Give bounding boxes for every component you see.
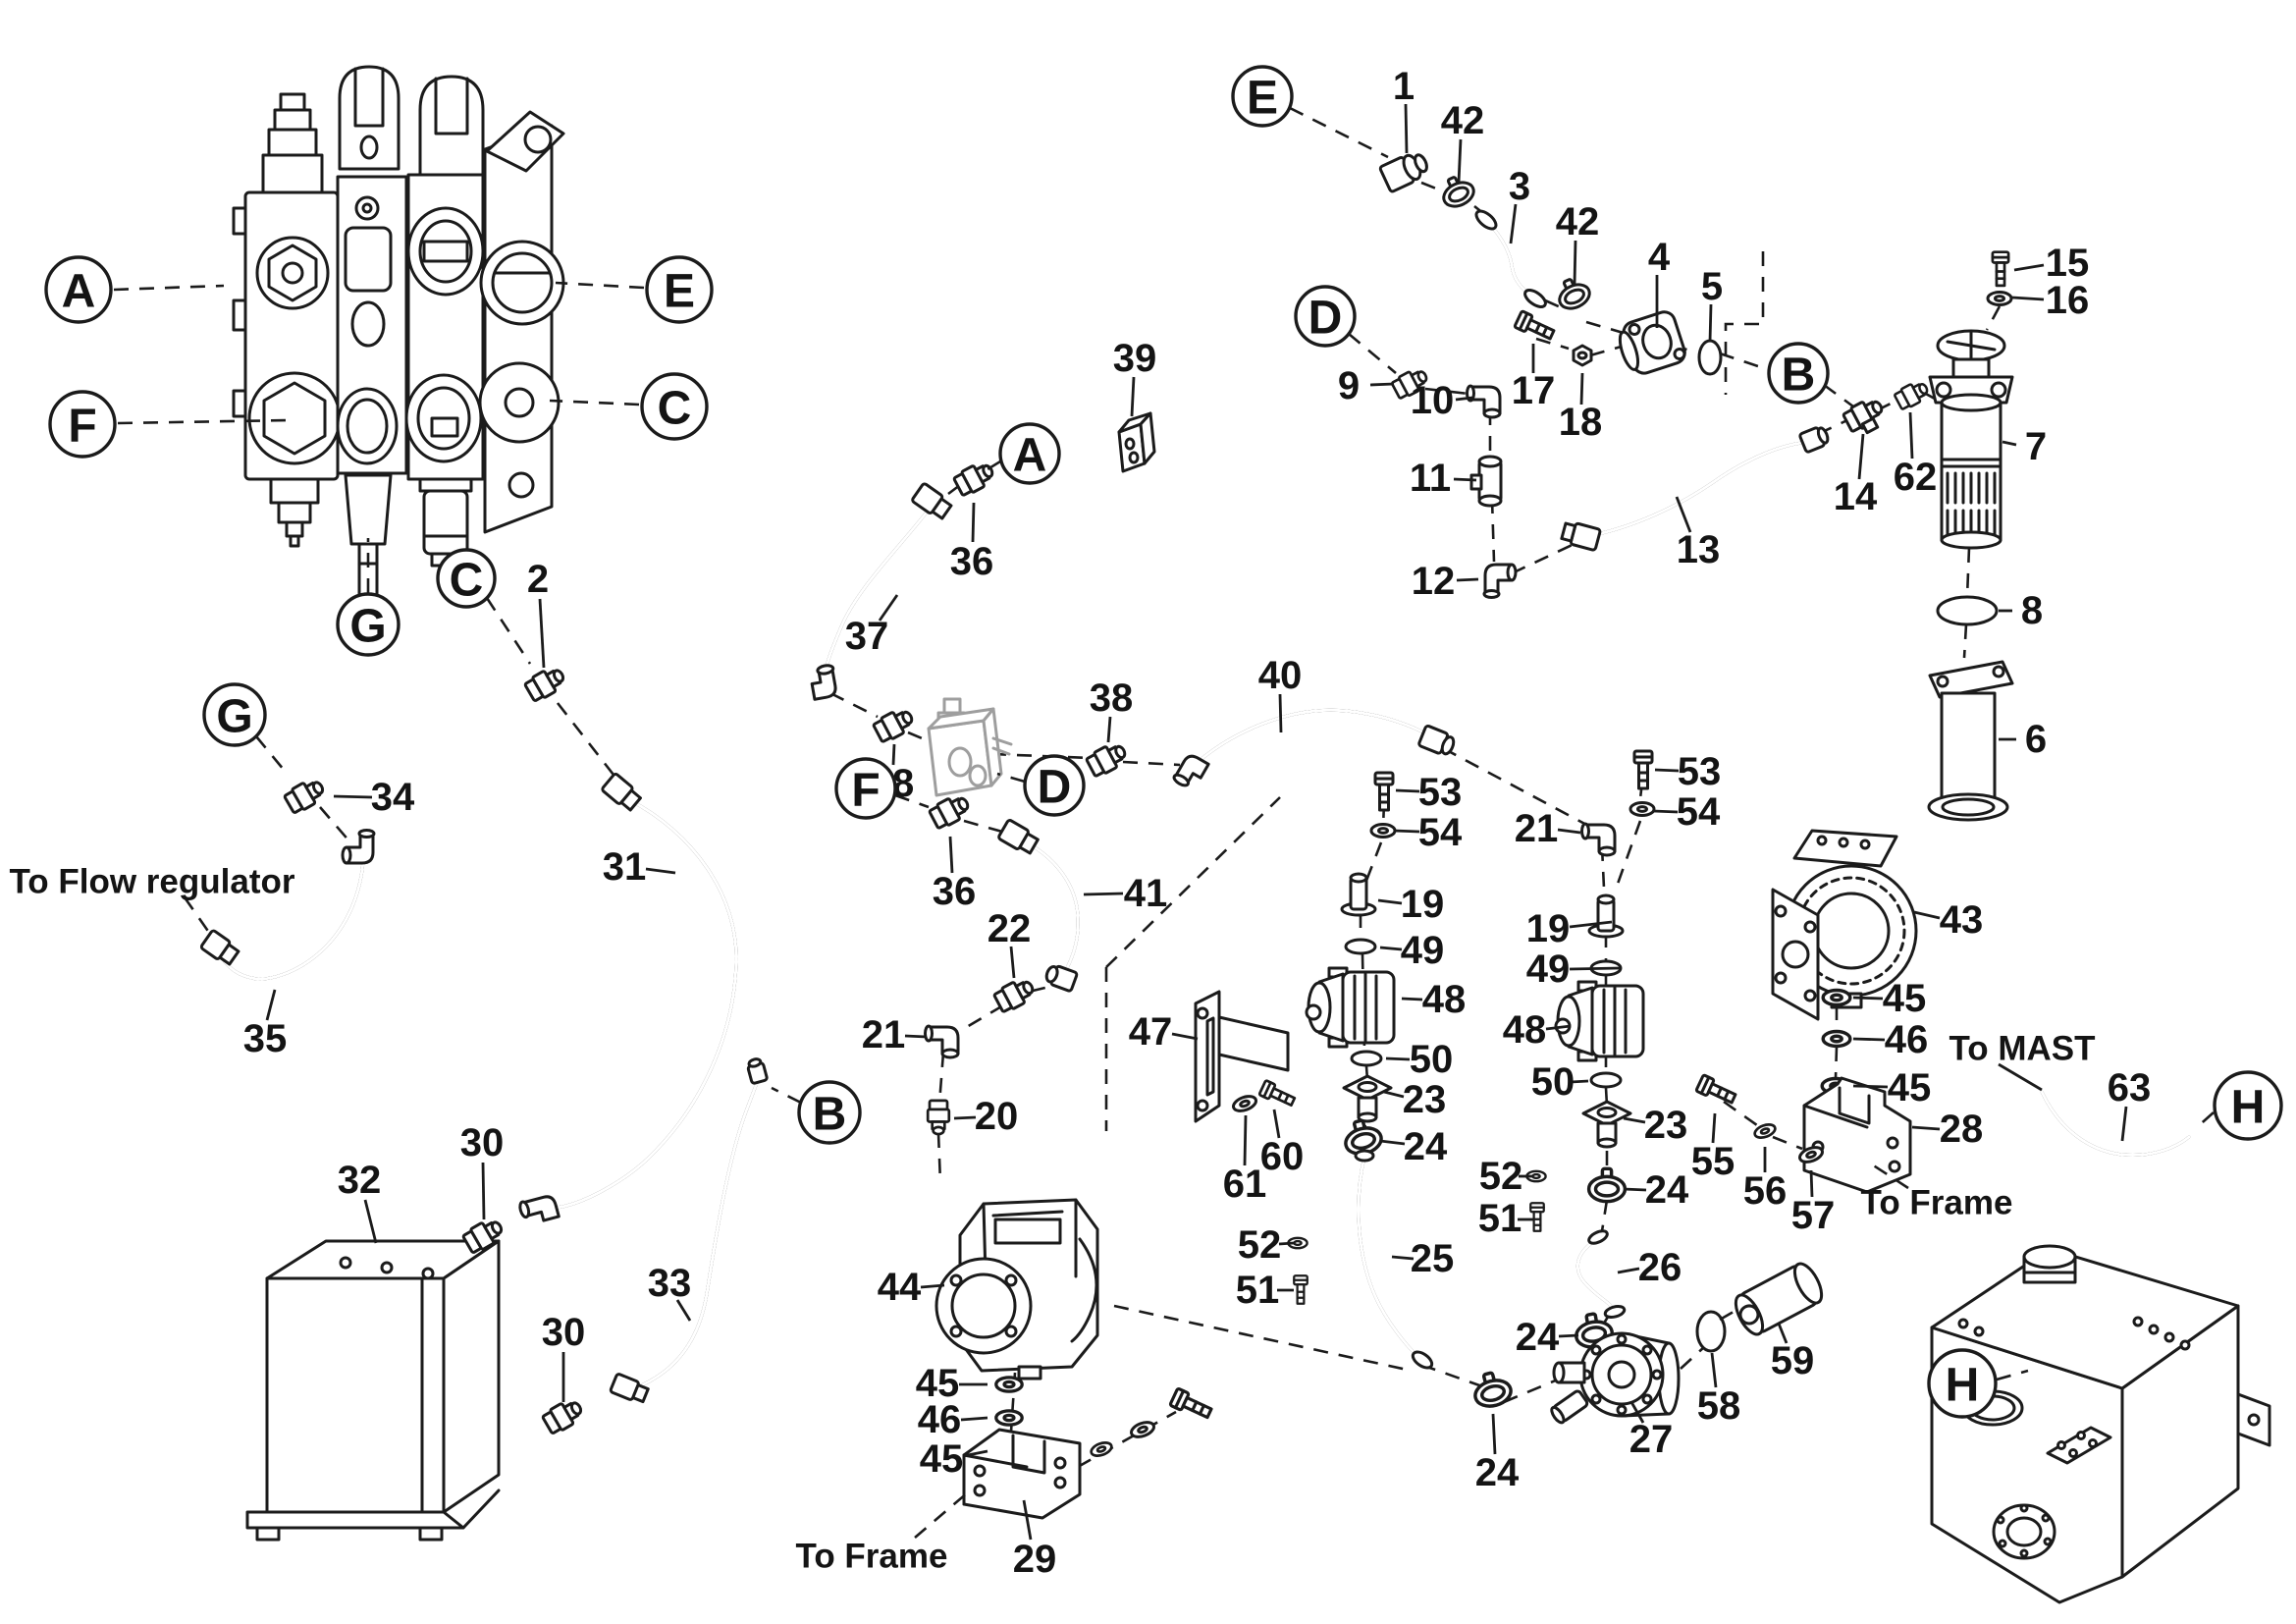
callout-letter-H-15: H — [1946, 1360, 1980, 1412]
clamp-42a — [1437, 172, 1477, 211]
part-leader-3 — [1511, 204, 1516, 244]
part-label-57-77: 57 — [1791, 1194, 1836, 1237]
o-ring-50b — [1591, 1073, 1621, 1087]
fitting-14 — [1842, 395, 1890, 438]
part-label-63-83: 63 — [2108, 1066, 2152, 1110]
part-label-8-7: 8 — [2021, 589, 2043, 632]
part-label-45-59: 45 — [1888, 1066, 1932, 1110]
callout-leader-C — [487, 598, 530, 664]
nut-18 — [1574, 346, 1591, 365]
note-leader-0 — [185, 897, 212, 937]
part-leader-47 — [1172, 1034, 1198, 1039]
elbow-21a — [926, 1026, 959, 1057]
axis-line-58 — [1536, 339, 1569, 349]
part-label-53-72: 53 — [1678, 750, 1722, 793]
washer-54a — [1371, 825, 1395, 838]
part-label-33-39: 33 — [648, 1262, 692, 1305]
part-label-60-80: 60 — [1260, 1135, 1305, 1178]
bracket-29-art — [964, 1430, 1080, 1518]
axis-line-32 — [1773, 1137, 1802, 1149]
part-leader-36 — [950, 837, 952, 873]
part-leader-40 — [1280, 694, 1281, 732]
axis-line-47 — [1726, 251, 1763, 395]
washer-45a — [1823, 991, 1850, 1005]
part-leader-28 — [1912, 1127, 1940, 1129]
clamp-24b — [1589, 1168, 1626, 1201]
stub-19a — [1342, 874, 1375, 915]
part-label-49-63: 49 — [1401, 929, 1445, 972]
part-label-23-24: 23 — [1403, 1078, 1447, 1121]
bolt-53a — [1375, 773, 1393, 810]
bolt-51b — [1294, 1275, 1308, 1304]
part-leader-32 — [365, 1200, 376, 1243]
part-label-40-48: 40 — [1258, 654, 1303, 697]
part-label-58-78: 58 — [1697, 1384, 1741, 1428]
part-leader-55 — [1713, 1113, 1715, 1143]
fitting-23b — [1583, 1102, 1630, 1147]
bolt-53b — [1634, 751, 1652, 788]
part-leader-21 — [1558, 830, 1580, 833]
part-label-13-12: 13 — [1677, 528, 1721, 571]
callout-letter-F-9: F — [851, 765, 880, 817]
part-leader-50 — [1386, 1058, 1410, 1059]
part-leader-63 — [2122, 1107, 2126, 1141]
part-label-12-11: 12 — [1412, 560, 1456, 603]
part-leader-15 — [2014, 265, 2044, 270]
washer-54b — [1630, 803, 1654, 816]
fitting-30b — [542, 1396, 586, 1435]
washer-29b — [1090, 1440, 1113, 1458]
axis-line-50 — [1492, 499, 1494, 562]
part-label-39-47: 39 — [1113, 337, 1157, 380]
axis-line-4 — [908, 732, 927, 740]
clamp-42b — [1553, 274, 1593, 313]
part-leader-11 — [1454, 479, 1476, 480]
fitting-38b — [1086, 739, 1130, 778]
part-label-23-25: 23 — [1644, 1104, 1688, 1147]
axis-lines — [320, 183, 2000, 1467]
part-label-21-21: 21 — [862, 1013, 906, 1056]
part-label-24-28: 24 — [1516, 1316, 1560, 1359]
callout-leader-E — [1290, 108, 1388, 157]
part-label-24-29: 24 — [1475, 1451, 1520, 1494]
axis-line-51 — [1512, 542, 1578, 573]
part-leader-48 — [1402, 999, 1422, 1000]
part-label-30-36: 30 — [542, 1311, 586, 1354]
part-leader-41 — [1084, 893, 1123, 894]
bolt-29-mount — [1170, 1388, 1213, 1422]
stub-19b — [1589, 895, 1623, 937]
part-label-29-34: 29 — [1013, 1538, 1057, 1581]
elbow-12 — [1484, 565, 1516, 598]
pump-48b — [1556, 982, 1643, 1060]
part-label-11-10: 11 — [1410, 457, 1451, 500]
part-leader-42 — [1575, 241, 1575, 285]
part-label-10-9: 10 — [1411, 379, 1455, 422]
part-label-43-52: 43 — [1940, 898, 1984, 942]
part-label-24-27: 24 — [1645, 1168, 1689, 1212]
part-leader-45 — [1853, 1086, 1888, 1087]
part-leader-46 — [1853, 1039, 1885, 1040]
hose-35-art — [200, 831, 374, 979]
part-label-18-17: 18 — [1559, 401, 1603, 444]
axis-line-1 — [558, 703, 620, 784]
part-label-37-44: 37 — [845, 615, 889, 658]
part-label-52-70: 52 — [1238, 1223, 1282, 1267]
part-label-45-56: 45 — [920, 1437, 964, 1481]
axis-line-31 — [1724, 1102, 1757, 1125]
part-leader-45 — [1853, 998, 1883, 999]
callout-letter-A-7: A — [1013, 430, 1047, 482]
part-leader-53 — [1655, 770, 1679, 771]
part-leader-58 — [1712, 1353, 1716, 1387]
part-label-54-73: 54 — [1418, 811, 1463, 854]
part-leader-14 — [1859, 434, 1863, 479]
part-leader-46 — [961, 1418, 988, 1420]
axis-line-0 — [320, 807, 350, 842]
part-leader-22 — [1011, 947, 1014, 978]
part-leader-24 — [1559, 1335, 1578, 1336]
part-leader-34 — [334, 796, 372, 797]
part-label-42-50: 42 — [1441, 99, 1485, 142]
control-valve-art — [234, 67, 563, 601]
part-leader-42 — [1459, 139, 1461, 183]
part-leader-16 — [2012, 298, 2044, 299]
part-label-19-18: 19 — [1401, 883, 1445, 926]
part-leader-35 — [267, 990, 275, 1020]
hose-37-art — [809, 483, 952, 699]
part-leader-62 — [1910, 412, 1912, 459]
part-label-6-5: 6 — [2025, 718, 2047, 761]
part-leader-24 — [1624, 1189, 1646, 1190]
hose-41-art — [998, 819, 1079, 991]
part-leader-53 — [1396, 790, 1419, 791]
callout-leader-B — [1824, 385, 1853, 406]
part-label-25-30: 25 — [1411, 1237, 1455, 1280]
hose-26-art — [1577, 1228, 1626, 1319]
part-leader-5 — [1710, 304, 1711, 342]
o-ring-5 — [1699, 341, 1721, 374]
cooler-32-art — [247, 1241, 499, 1540]
part-label-9-8: 9 — [1338, 364, 1360, 407]
part-label-30-35: 30 — [460, 1121, 505, 1164]
part-leader-21 — [905, 1036, 927, 1037]
bolt-51a — [1530, 1203, 1544, 1231]
part-label-21-22: 21 — [1515, 807, 1559, 850]
part-leader-9 — [1370, 384, 1394, 385]
callout-letter-C-6: C — [450, 555, 484, 607]
callout-letter-G-4: G — [349, 601, 386, 653]
part-label-55-75: 55 — [1691, 1140, 1735, 1183]
diagram-root: 1234567891011121314151617181919202121222… — [0, 0, 2296, 1624]
part-label-1-0: 1 — [1393, 65, 1415, 108]
callout-leader-C — [550, 401, 639, 405]
part-label-20-20: 20 — [975, 1095, 1019, 1138]
part-leader-60 — [1274, 1110, 1279, 1138]
part-label-14-13: 14 — [1834, 475, 1878, 518]
axis-line-53 — [1421, 183, 1441, 190]
part-label-45-57: 45 — [1883, 977, 1927, 1020]
callout-leader-A — [114, 286, 224, 290]
callout-leader-B — [772, 1088, 801, 1103]
part-label-50-66: 50 — [1531, 1060, 1575, 1104]
part-label-41-49: 41 — [1124, 872, 1168, 915]
tank-art — [1932, 1246, 2269, 1602]
callout-letter-F-1: F — [68, 401, 96, 453]
flange-4-art — [1614, 309, 1687, 378]
part-label-51-67: 51 — [1478, 1197, 1522, 1240]
fitting-23a — [1344, 1076, 1391, 1121]
part-leader-36 — [973, 503, 974, 542]
axis-line-11 — [938, 1133, 940, 1183]
part-leader-43 — [1914, 912, 1940, 918]
part-leader-49 — [1570, 968, 1620, 969]
part-label-53-71: 53 — [1418, 771, 1463, 814]
part-label-46-58: 46 — [1885, 1018, 1929, 1061]
bolt-15 — [1993, 252, 2008, 286]
part-leader-54 — [1394, 831, 1419, 832]
callout-letter-H-14: H — [2231, 1082, 2266, 1134]
bolt-17 — [1515, 311, 1556, 343]
part-label-44-53: 44 — [878, 1266, 922, 1309]
part-leader-49 — [1380, 947, 1402, 949]
part-label-31-37: 31 — [603, 845, 647, 889]
fitting-22 — [993, 975, 1038, 1013]
clamp-24d — [1470, 1369, 1514, 1410]
washer-45c — [996, 1378, 1022, 1391]
note-leader-2 — [915, 1492, 968, 1538]
pump-27-art — [1549, 1333, 1679, 1425]
part-label-32-38: 32 — [338, 1159, 382, 1202]
part-leader-24 — [1493, 1414, 1495, 1454]
part-label-46-55: 46 — [918, 1398, 962, 1441]
bolt-55 — [1696, 1075, 1737, 1107]
part-leader-57 — [1811, 1170, 1812, 1197]
part-leader-19 — [1378, 900, 1402, 903]
fitting-36b — [929, 791, 973, 830]
part-label-22-23: 22 — [988, 907, 1032, 950]
o-ring-8 — [1938, 597, 1997, 624]
part-label-56-76: 56 — [1743, 1169, 1788, 1213]
part-label-27-32: 27 — [1629, 1418, 1674, 1461]
part-label-3-2: 3 — [1509, 165, 1530, 208]
part-label-50-65: 50 — [1410, 1038, 1454, 1081]
part-label-49-64: 49 — [1526, 947, 1571, 991]
tube-6-art — [1929, 662, 2012, 820]
note-2: To Frame — [796, 1538, 948, 1576]
axis-line-27 — [1618, 821, 1640, 884]
callout-letter-D-10: D — [1308, 293, 1343, 345]
axis-line-29 — [1836, 1047, 1837, 1078]
axis-line-9 — [960, 1005, 1003, 1031]
part-leader-39 — [1132, 377, 1134, 416]
part-leader-20 — [954, 1117, 976, 1118]
callout-letter-B-12: B — [1782, 350, 1816, 402]
washer-46a — [1823, 1032, 1850, 1047]
part-label-54-74: 54 — [1677, 790, 1721, 834]
part-leader-24 — [1380, 1141, 1405, 1144]
washer-16 — [1988, 293, 2011, 305]
callout-leader-H — [2195, 1112, 2214, 1129]
o-ring-50a — [1352, 1052, 1381, 1065]
callout-letter-E-2: E — [664, 266, 695, 318]
part-label-4-3: 4 — [1648, 236, 1671, 279]
part-label-61-81: 61 — [1223, 1163, 1267, 1206]
part-label-16-15: 16 — [2046, 279, 2090, 322]
part-label-34-40: 34 — [371, 776, 415, 819]
callout-letter-D-8: D — [1038, 762, 1072, 814]
hose-31-art — [518, 773, 736, 1225]
part-leader-10 — [1456, 398, 1472, 400]
part-label-59-79: 59 — [1771, 1339, 1815, 1382]
washer-46b — [996, 1411, 1022, 1425]
callout-letter-C-3: C — [658, 383, 692, 435]
elbow-21b — [1582, 824, 1616, 855]
part-label-5-4: 5 — [1701, 265, 1723, 308]
axis-line-3 — [830, 693, 878, 717]
part-label-2-1: 2 — [527, 558, 549, 601]
part-label-7-6: 7 — [2025, 425, 2047, 468]
part-label-48-61: 48 — [1422, 978, 1467, 1021]
axis-line-42 — [1967, 548, 1969, 597]
part-label-26-31: 26 — [1638, 1246, 1682, 1289]
motor-44-art — [936, 1200, 1097, 1379]
part-leader-52 — [1279, 1243, 1294, 1244]
fitting-2 — [524, 664, 568, 703]
hose-40-art — [1172, 710, 1456, 791]
callout-letter-A-0: A — [62, 266, 96, 318]
note-leader-1 — [1999, 1064, 2042, 1090]
o-ring-49a — [1346, 940, 1375, 953]
pump-48a — [1307, 968, 1394, 1047]
part-leader-23 — [1624, 1118, 1645, 1122]
axis-line-41 — [1987, 306, 2000, 330]
part-label-38-46: 38 — [1090, 677, 1134, 720]
axis-line-10 — [939, 1053, 943, 1104]
part-leader-30 — [483, 1163, 484, 1219]
fitting-20 — [928, 1101, 949, 1134]
note-0: To Flow regulator — [9, 863, 294, 901]
check-valve-block-ghost — [929, 699, 1011, 795]
fitting-62 — [1894, 378, 1931, 410]
fitting-38a — [873, 705, 917, 743]
part-label-19-19: 19 — [1526, 907, 1571, 950]
part-leader-23 — [1384, 1092, 1404, 1097]
axis-line-43 — [1964, 624, 1966, 658]
diagram-canvas: 1234567891011121314151617181919202121222… — [0, 0, 2296, 1624]
fitting-36a — [953, 459, 997, 497]
part-leader-44 — [921, 1285, 944, 1287]
part-label-24-26: 24 — [1404, 1125, 1448, 1168]
part-label-52-69: 52 — [1479, 1155, 1523, 1198]
part-leader-7 — [2002, 442, 2016, 445]
o-ring-58 — [1697, 1312, 1725, 1351]
part-label-48-62: 48 — [1503, 1008, 1547, 1052]
elbow-10 — [1468, 386, 1501, 417]
part-label-36-43: 36 — [933, 870, 977, 913]
part-label-42-51: 42 — [1556, 200, 1600, 244]
note-3: To Frame — [1861, 1184, 2013, 1222]
washer-61 — [1232, 1094, 1258, 1113]
part-leader-61 — [1245, 1115, 1246, 1165]
callout-leader-G — [256, 736, 289, 776]
part-label-62-82: 62 — [1894, 456, 1938, 499]
part-leader-38 — [1108, 717, 1110, 742]
block-39-art — [1119, 413, 1154, 471]
part-label-51-68: 51 — [1236, 1269, 1280, 1312]
part-label-36-42: 36 — [950, 540, 994, 583]
axis-line-60 — [1078, 1412, 1176, 1467]
hose-3-art — [1473, 208, 1548, 310]
filter-7-art — [1930, 331, 2012, 548]
part-leader-26 — [1618, 1269, 1639, 1272]
axis-line-48 — [1720, 353, 1767, 369]
part-leader-1 — [1406, 104, 1407, 153]
callout-letter-B-13: B — [813, 1089, 847, 1141]
callout-letter-G-5: G — [216, 691, 252, 743]
part-leader-12 — [1457, 579, 1478, 580]
washer-29a — [1130, 1420, 1156, 1439]
part-leader-31 — [646, 869, 675, 873]
bolt-60 — [1259, 1080, 1297, 1109]
axis-line-38 — [1114, 1306, 1412, 1371]
part-label-35-41: 35 — [243, 1017, 288, 1060]
part-label-28-33: 28 — [1940, 1108, 1984, 1151]
axis-line-36 — [1681, 1347, 1704, 1369]
part-label-17-16: 17 — [1512, 369, 1556, 412]
part-1-art — [1379, 148, 1431, 191]
axis-line-24 — [1602, 1200, 1607, 1231]
part-label-47-60: 47 — [1129, 1010, 1173, 1054]
part-leader-2 — [540, 599, 544, 668]
callout-leader-E — [556, 283, 644, 288]
note-1: To MAST — [1949, 1030, 2095, 1068]
callout-letter-E-11: E — [1247, 73, 1278, 125]
axis-line-6 — [1123, 762, 1180, 765]
part-leader-54 — [1653, 811, 1678, 812]
